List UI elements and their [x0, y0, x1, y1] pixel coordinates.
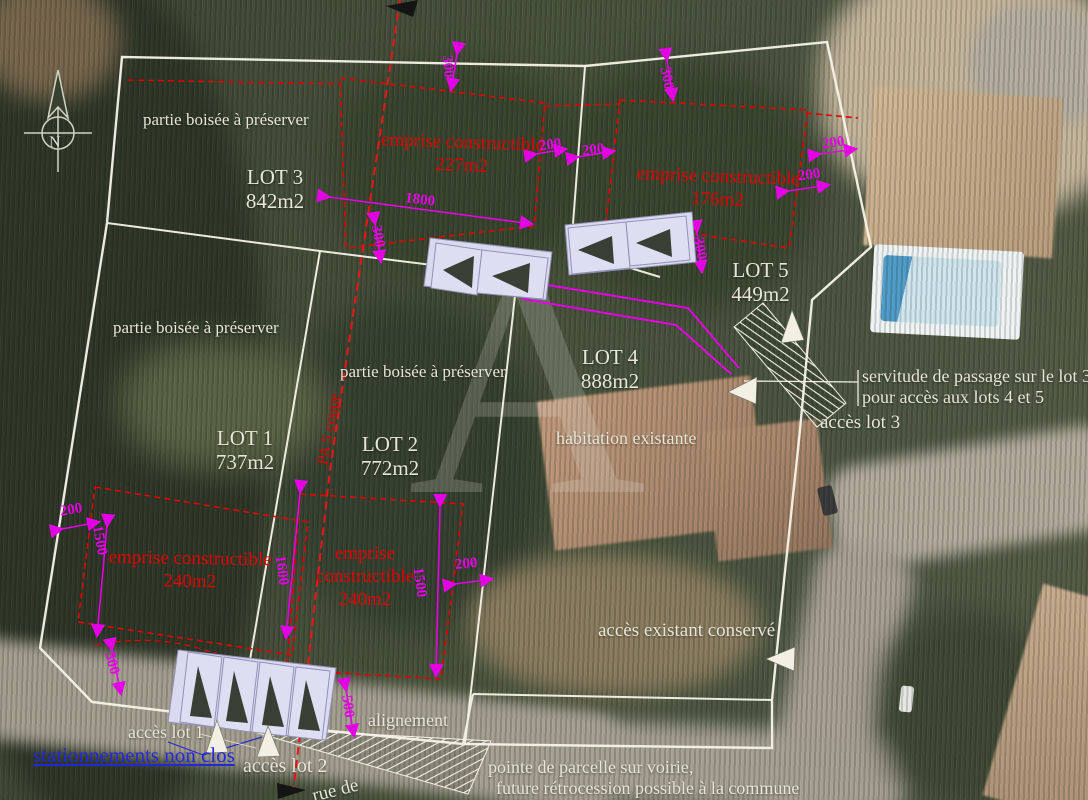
site-plan: A: [0, 0, 1088, 800]
label-acces-lot3: accès lot 3: [820, 412, 900, 434]
lot2-area: 772m2: [340, 456, 440, 480]
lot5-area: 449m2: [713, 282, 808, 306]
lot1-area: 737m2: [195, 450, 295, 474]
pointe-line1: pointe de parcelle sur voirie,: [488, 757, 799, 778]
servitude-line1: servitude de passage sur le lot 3: [862, 366, 1088, 387]
label-emprise-lot5: emprise constructible 176m2: [627, 163, 808, 215]
emprise2-line1: emprise: [305, 543, 425, 566]
dim-label: 200: [821, 134, 846, 154]
label-lot3: LOT 3 842m2: [225, 165, 325, 213]
dim-label: 300: [689, 236, 710, 261]
emprise2-line2: constructible: [305, 566, 425, 589]
pointe-line2: future rétrocession possible à la commun…: [488, 778, 799, 799]
dim-label: 1800: [404, 190, 436, 211]
lot3-area: 842m2: [225, 189, 325, 213]
label-woods-top: partie boisée à préserver: [143, 110, 309, 130]
lot4-area: 888m2: [555, 369, 665, 393]
dim-label: 300: [438, 55, 457, 79]
lot1-name: LOT 1: [195, 426, 295, 450]
dim-label: 200: [454, 555, 478, 574]
label-lot4: LOT 4 888m2: [555, 345, 665, 393]
dim-label: 200: [797, 166, 822, 186]
label-woods-left: partie boisée à préserver: [113, 318, 279, 338]
label-emprise-lot1: emprise constructible 240m2: [100, 546, 281, 595]
emprise2-line3: 240m2: [305, 589, 425, 612]
label-woods-mid: partie boisée à préserver: [340, 362, 506, 382]
label-pointe: pointe de parcelle sur voirie, future ré…: [488, 757, 799, 798]
compass-north-label: N: [49, 134, 61, 152]
label-habitation: habitation existante: [556, 428, 696, 449]
lot5-name: LOT 5: [713, 258, 808, 282]
dim-label: 300: [656, 66, 677, 91]
servitude-line2: pour accès aux lots 4 et 5: [862, 387, 1088, 408]
dim-label: 300: [367, 224, 388, 249]
dim-label: 500: [337, 694, 357, 719]
emprise1-line2: 240m2: [100, 569, 280, 595]
label-lot1: LOT 1 737m2: [195, 426, 295, 474]
label-acces-lot1: accès lot 1: [128, 722, 204, 743]
label-emprise-lot3: emprise constructible 227m2: [371, 129, 552, 181]
lot3-name: LOT 3: [225, 165, 325, 189]
label-lot2: LOT 2 772m2: [340, 432, 440, 480]
emprise1-line1: emprise constructible: [100, 546, 280, 572]
label-servitude: servitude de passage sur le lot 3 pour a…: [862, 366, 1088, 407]
label-acces-lot2: accès lot 2: [243, 755, 327, 778]
lot2-name: LOT 2: [340, 432, 440, 456]
dim-label: 200: [581, 141, 606, 161]
label-alignement: alignement: [368, 710, 448, 731]
label-stationnements: stationnements non clos: [33, 743, 235, 767]
lot4-name: LOT 4: [555, 345, 665, 369]
dim-label: 200: [538, 136, 563, 156]
label-lot5: LOT 5 449m2: [713, 258, 808, 306]
label-acces-existant: accès existant conservé: [598, 620, 775, 642]
label-emprise-lot2: emprise constructible 240m2: [305, 543, 425, 611]
